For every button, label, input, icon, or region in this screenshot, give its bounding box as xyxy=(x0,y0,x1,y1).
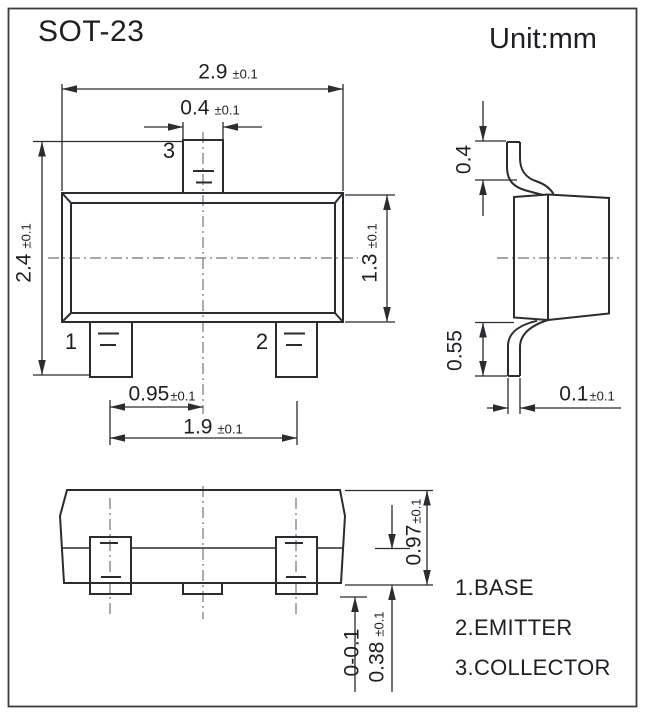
dim-value: 2.9 xyxy=(198,61,227,84)
dim-value: 2.4 xyxy=(13,254,36,283)
pin2-label: 2 xyxy=(256,331,268,353)
dim-lead-thickness-label: 0.1±0.1 xyxy=(559,384,614,405)
side-view-drawing xyxy=(507,142,609,376)
dim-tolerance: ±0.1 xyxy=(409,498,424,523)
pin1-label: 1 xyxy=(65,331,77,353)
dim-value: 0-0.1 xyxy=(341,629,364,677)
dim-tolerance: ±0.1 xyxy=(170,389,195,404)
dim-tolerance: ±0.1 xyxy=(372,611,387,636)
dim-pin-span-label: 1.9±0.1 xyxy=(183,417,242,438)
dim-value: 1.9 xyxy=(183,416,212,439)
unit-label: Unit:mm xyxy=(489,23,597,56)
dim-tolerance: ±0.1 xyxy=(589,389,614,404)
dim-tolerance: ±0.1 xyxy=(19,223,34,248)
dim-value: 0.97 xyxy=(403,525,426,566)
dim-pin-width-label: 0.4±0.1 xyxy=(180,98,239,119)
dim-body-thickness-label: 0.38±0.1 xyxy=(367,611,388,682)
dim-value: 1.3 xyxy=(359,254,382,283)
dim-tolerance: ±0.1 xyxy=(232,67,257,82)
sot23-package-drawing: SOT-23 Unit:mm 3 1 2 2.9±0.1 0.4±0.1 0.9… xyxy=(0,0,645,715)
legend-item-emitter: 2.EMITTER xyxy=(455,615,573,641)
page-title: SOT-23 xyxy=(38,15,144,49)
legend-item-collector: 3.COLLECTOR xyxy=(455,655,611,681)
dim-body-depth-label: 1.3±0.1 xyxy=(360,223,381,282)
technical-drawing-linework xyxy=(0,0,645,715)
dim-value: 0.4 xyxy=(453,145,476,174)
dim-standoff-label: 0-0.1 xyxy=(342,624,363,677)
dim-pin-pitch-label: 0.95±0.1 xyxy=(128,384,195,405)
legend-item-base: 1.BASE xyxy=(455,575,534,601)
dim-value: 0.95 xyxy=(128,383,169,406)
dim-body-width-label: 2.9±0.1 xyxy=(198,62,257,83)
dim-lead-top-label: 0.4 xyxy=(454,140,475,174)
dim-tolerance: ±0.1 xyxy=(214,103,239,118)
dim-tolerance: ±0.1 xyxy=(365,223,380,248)
dim-value: 0.4 xyxy=(180,97,209,120)
dim-value: 0.1 xyxy=(559,383,588,406)
dim-package-height-label: 0.97±0.1 xyxy=(404,498,425,565)
dim-value: 0.38 xyxy=(366,642,389,683)
drawing-frame xyxy=(9,9,637,707)
dim-overall-depth-label: 2.4±0.1 xyxy=(14,223,35,282)
dim-value: 0.55 xyxy=(444,330,467,371)
pin3-label: 3 xyxy=(163,140,175,162)
dim-lead-bottom-label: 0.55 xyxy=(445,325,466,371)
dim-tolerance: ±0.1 xyxy=(217,422,242,437)
